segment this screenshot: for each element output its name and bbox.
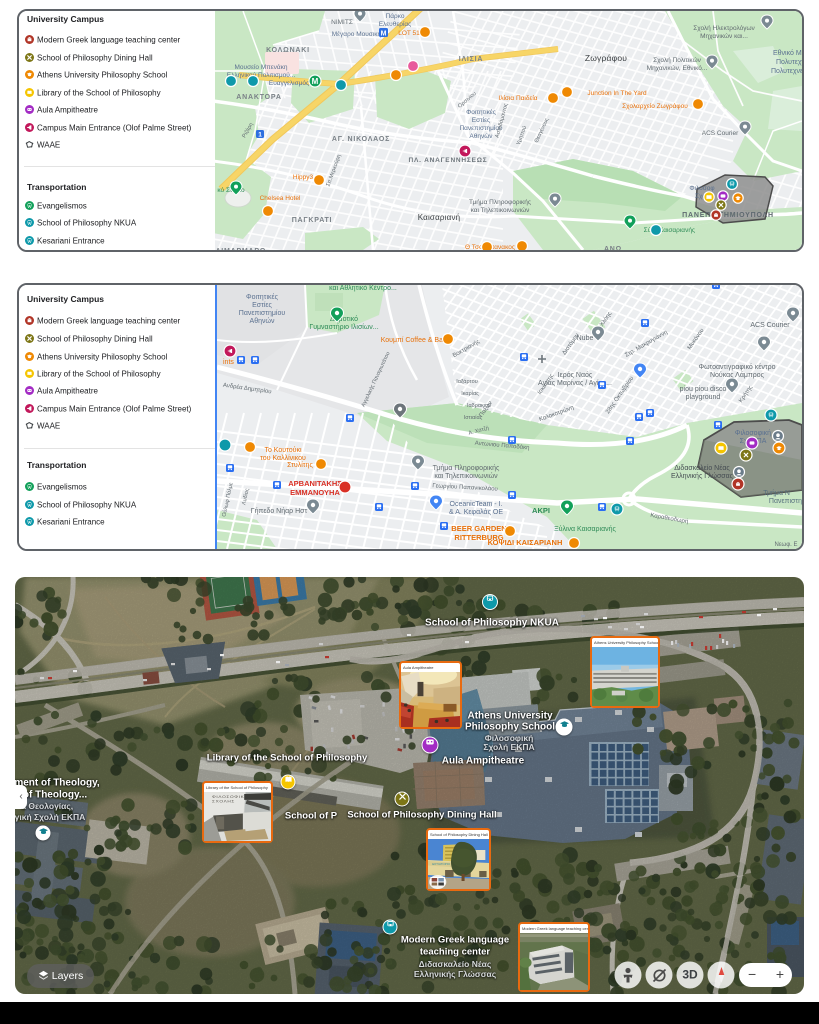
svg-text:ΕΣΤΙΑΤΟΡΙΟ: ΕΣΤΙΑΤΟΡΙΟ — [432, 862, 451, 866]
svg-text:ΕΜΜΑΝΟΥΗΑ: ΕΜΜΑΝΟΥΗΑ — [290, 488, 340, 497]
svg-text:Το Κουτούκι: Το Κουτούκι — [264, 446, 302, 454]
svg-text:Junction In The Yard: Junction In The Yard — [587, 90, 647, 97]
svg-text:ΚΟΛΩΝΑΚΙ: ΚΟΛΩΝΑΚΙ — [266, 47, 310, 54]
svg-text:Τμήμα Πληροφορικής: Τμήμα Πληροφορικής — [469, 199, 531, 206]
svg-text:ACS Courier: ACS Courier — [702, 130, 739, 137]
svg-text:Νούκας Λάμπρος: Νούκας Λάμπρος — [710, 371, 765, 379]
svg-text:Τμήμα Πληροφορικής: Τμήμα Πληροφορικής — [433, 465, 500, 472]
svg-text:Εθνικό Μετσ: Εθνικό Μετσ — [773, 49, 802, 57]
svg-text:Ευαγγελισμός: Ευαγγελισμός — [269, 79, 309, 87]
svg-text:Καισαριανής: Καισαριανής — [659, 227, 695, 234]
svg-text:Μέγαρο Μουσικής: Μέγαρο Μουσικής — [332, 30, 384, 38]
svg-text:M: M — [381, 31, 387, 38]
svg-text:Νεωφ. Ε: Νεωφ. Ε — [775, 542, 798, 548]
svg-text:ΑΝΩ: ΑΝΩ — [604, 246, 622, 250]
svg-text:Αθηνών: Αθηνών — [469, 132, 492, 140]
svg-text:Ιαξάρτου: Ιαξάρτου — [456, 378, 477, 385]
svg-text:Σχολή Πολιτικών: Σχολή Πολιτικών — [653, 56, 701, 64]
svg-text:OceanicTeam - Ι.: OceanicTeam - Ι. — [450, 501, 503, 508]
svg-text:Μηχανικών, Εθνικό...: Μηχανικών, Εθνικό... — [647, 64, 708, 72]
svg-text:και Τηλεπικοινωνιών: και Τηλεπικοινωνιών — [471, 206, 530, 214]
svg-text:ΚΟΨΙΔΙ ΚΑΙΣΑΡΙΑΝΗ: ΚΟΨΙΔΙ ΚΑΙΣΑΡΙΑΝΗ — [488, 538, 563, 547]
svg-text:Πανεπιστη: Πανεπιστη — [769, 498, 802, 505]
svg-text:Ελληνικού Πολιτισμού...: Ελληνικού Πολιτισμού... — [227, 71, 296, 79]
svg-text:Κουμπί Coffee & Bar: Κουμπί Coffee & Bar — [381, 336, 446, 344]
svg-text:Φιλοσοφική: Φιλοσοφική — [735, 430, 771, 437]
svg-text:Πανεπιστημίου: Πανεπιστημίου — [239, 309, 286, 317]
svg-text:Σχολή Ηλεκτρολόγων: Σχολή Ηλεκτρολόγων — [693, 24, 755, 32]
svg-text:Ικαρίας: Ικαρίας — [461, 391, 479, 397]
svg-text:ΣΧΟΛΗΣ: ΣΧΟΛΗΣ — [212, 799, 235, 803]
svg-text:LOT 51: LOT 51 — [398, 30, 420, 37]
svg-text:BEER GARDEN: BEER GARDEN — [451, 524, 506, 533]
svg-text:ΠΑΓΚΡΑΤΙ: ΠΑΓΚΡΑΤΙ — [292, 217, 333, 224]
svg-text:Ελληνικής Γλώσσας: Ελληνικής Γλώσσας — [671, 472, 734, 480]
svg-text:Φιλοσοφ: Φιλοσοφ — [689, 185, 714, 192]
svg-text:& Α. Κεφαλάς ΟΕ: & Α. Κεφαλάς ΟΕ — [449, 508, 503, 516]
svg-text:ΑΡΒΑΝΙΤΑΚΗΣ: ΑΡΒΑΝΙΤΑΚΗΣ — [288, 479, 342, 488]
svg-text:Chelsea Hotel: Chelsea Hotel — [260, 195, 301, 202]
svg-text:ACS Courier: ACS Courier — [750, 322, 790, 329]
svg-text:Εστίες: Εστίες — [472, 116, 490, 124]
svg-text:Στυλίτης: Στυλίτης — [287, 461, 313, 469]
svg-text:Γυμναστήριο Ιλισίων...: Γυμναστήριο Ιλισίων... — [309, 323, 378, 331]
svg-text:Hippy3: Hippy3 — [293, 174, 314, 181]
svg-text:ΑΚΡΙ: ΑΚΡΙ — [532, 506, 550, 515]
svg-text:του Καλλίνικου: του Καλλίνικου — [260, 454, 306, 462]
svg-text:ΑΓ. ΝΙΚΟΛΑΟΣ: ΑΓ. ΝΙΚΟΛΑΟΣ — [332, 136, 390, 143]
svg-text:ΠΛ. ΑΝΑΓΕΝΝΗΣΕΩΣ: ΠΛ. ΑΝΑΓΕΝΝΗΣΕΩΣ — [409, 157, 488, 164]
svg-text:Φοιτητικές: Φοιτητικές — [466, 108, 496, 116]
svg-text:και Αθλητικό Κέντρο...: και Αθλητικό Κέντρο... — [329, 285, 397, 292]
svg-text:και Τηλεπικοινωνιών: και Τηλεπικοινωνιών — [434, 472, 498, 480]
svg-text:Φωτοαντιγραφικό κέντρο: Φωτοαντιγραφικό κέντρο — [698, 363, 775, 371]
svg-text:playground: playground — [686, 394, 721, 401]
svg-text:Ζωγράφου: Ζωγράφου — [585, 53, 627, 63]
svg-text:Διδασκαλείο Νέας: Διδασκαλείο Νέας — [674, 464, 730, 472]
svg-text:ΝΙΜΙΤΣ: ΝΙΜΙΤΣ — [331, 19, 353, 26]
svg-text:Ελευθερίας: Ελευθερίας — [379, 20, 412, 28]
svg-text:Πολυτεχνειού: Πολυτεχνειού — [771, 67, 802, 75]
svg-text:Μηχανικών και...: Μηχανικών και... — [700, 32, 748, 40]
svg-text:Γήπεδο Νήαρ Ηστ: Γήπεδο Νήαρ Ηστ — [251, 508, 308, 515]
svg-text:ΠΑΝΕΠΙΣΤΗΜΙΟΥΠΟΛΗ: ΠΑΝΕΠΙΣΤΗΜΙΟΥΠΟΛΗ — [682, 212, 774, 219]
svg-text:piou piou disco: piou piou disco — [680, 386, 727, 393]
svg-text:Καισαριανή: Καισαριανή — [418, 213, 461, 222]
svg-text:Μουσείο Μπενάκη: Μουσείο Μπενάκη — [234, 63, 287, 71]
svg-text:Ιερός Ναός: Ιερός Ναός — [558, 371, 593, 379]
svg-text:Πάρκο: Πάρκο — [386, 12, 405, 20]
svg-text:Σχολαρχείο Ζωγράφου: Σχολαρχείο Ζωγράφου — [622, 102, 688, 110]
svg-text:Ξύλινα Καισαριανής: Ξύλινα Καισαριανής — [554, 525, 616, 533]
svg-text:ΑΛΙΜΑΡΜΑΡΟ: ΑΛΙΜΑΡΜΑΡΟ — [213, 248, 266, 250]
svg-text:Τμήμα Ν: Τμήμα Ν — [763, 490, 790, 497]
svg-text:ΑΝΑΚΤΟΡΑ: ΑΝΑΚΤΟΡΑ — [236, 94, 281, 101]
svg-text:Φοιτητικές: Φοιτητικές — [246, 293, 279, 301]
svg-text:1: 1 — [258, 132, 262, 139]
svg-text:M: M — [312, 77, 319, 86]
svg-text:ΙΛΙΣΙΑ: ΙΛΙΣΙΑ — [459, 56, 484, 63]
svg-text:Εστίες: Εστίες — [252, 301, 272, 309]
svg-text:Αθηνών: Αθηνών — [250, 317, 275, 325]
svg-text:Ιλίσια Παιδεία: Ιλίσια Παιδεία — [498, 94, 537, 102]
svg-text:Πολυτεχνεί: Πολυτεχνεί — [776, 58, 802, 66]
svg-text:ints: ints — [223, 359, 234, 366]
